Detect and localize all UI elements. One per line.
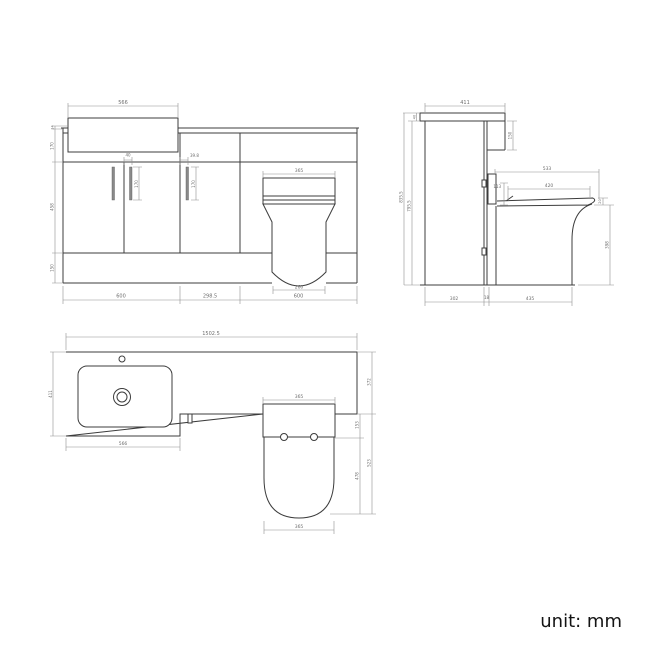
dim-side-total-height: 835.5 (399, 191, 404, 203)
plan-toilet-bowl (264, 437, 334, 518)
dim-side-flush-recess: 113 (493, 184, 501, 189)
side-flush-panel (488, 174, 496, 204)
drawing-canvas: 566 14 170 458 150 40 170 39.8 170 365 2… (0, 0, 650, 650)
plan-toilet (263, 404, 335, 518)
dim-side-seat-overall-depth: 533 (543, 166, 552, 172)
dim-side-pan-height: 398 (605, 241, 610, 249)
dim-side-carcass-height: 795.5 (407, 200, 412, 212)
unit-label: unit: mm (540, 611, 622, 632)
technical-drawing: 566 14 170 458 150 40 170 39.8 170 365 2… (0, 0, 650, 650)
dim-side-pan-projection: 435 (526, 296, 535, 302)
plan-seat-hinge-left (281, 434, 288, 441)
vanity-right-handle (130, 167, 133, 200)
dim-plan-worktop-depth: 372 (367, 378, 372, 386)
dim-side-seat-thickness: 20 (598, 199, 602, 203)
dim-plan-bowl-length: 478 (355, 472, 360, 480)
dim-front-wc-handle-offset: 39.8 (190, 153, 199, 158)
dim-plan-basin-unit-width: 566 (119, 441, 128, 447)
dim-side-worktop-depth: 411 (460, 100, 470, 106)
side-hinge-top (482, 180, 486, 187)
dim-front-worktop-band: 170 (50, 142, 55, 150)
plan-basin (78, 356, 172, 427)
dim-front-basin-rim: 14 (51, 125, 55, 130)
dim-front-plinth-height: 150 (50, 264, 55, 272)
side-toilet-profile (496, 196, 595, 285)
dim-front-vanity-handle-offset: 40 (125, 153, 131, 158)
dim-plan-bowl-width: 365 (295, 524, 304, 530)
dim-plan-basin-unit-depth: 411 (48, 390, 53, 398)
side-hinge-bottom (482, 248, 486, 255)
dim-plan-total-width: 1502.5 (202, 331, 220, 337)
dim-front-toilet-seat-width: 365 (295, 168, 304, 174)
front-elevation-view: 566 14 170 458 150 40 170 39.8 170 365 2… (50, 100, 360, 304)
vanity-left-handle (112, 167, 115, 200)
front-basin (68, 118, 178, 152)
dim-front-wc-handle-length: 170 (191, 180, 196, 188)
dim-front-wc-unit-width: 600 (294, 294, 304, 300)
dim-side-seat-depth: 420 (545, 183, 554, 189)
mid-unit-handle (186, 167, 189, 200)
front-toilet-body (263, 204, 335, 286)
dim-side-upstand-drop: 150 (508, 131, 513, 139)
plan-basin-bowl (78, 366, 172, 427)
dim-front-toilet-base-width: 260 (295, 285, 304, 291)
dim-side-gap: 18 (484, 295, 490, 300)
dim-front-basin-width: 566 (118, 100, 128, 106)
dim-plan-pan-length: 523 (367, 459, 372, 467)
side-elevation-view: 411 40 835.5 795.5 150 533 420 113 20 39… (399, 100, 615, 306)
dim-plan-seat-width: 365 (295, 394, 304, 400)
dim-front-mid-unit-width: 298.5 (203, 294, 217, 300)
plan-view: 1502.5 411 566 365 365 372 153 523 478 (48, 331, 376, 534)
plan-handle-tab (188, 414, 192, 423)
dim-side-worktop-thickness: 40 (413, 115, 417, 119)
plan-seat-hinge-right (311, 434, 318, 441)
plan-toilet-seat (263, 404, 335, 437)
front-toilet (263, 178, 335, 286)
dim-front-vanity-handle-length: 170 (134, 180, 139, 188)
dim-side-cabinet-depth: 302 (450, 296, 459, 302)
dim-front-door-height: 458 (50, 203, 55, 211)
dim-front-vanity-unit-width: 600 (116, 294, 126, 300)
plan-tap-hole (119, 356, 125, 362)
dim-plan-seat-recess: 153 (355, 421, 360, 429)
front-door-handles (112, 167, 189, 200)
